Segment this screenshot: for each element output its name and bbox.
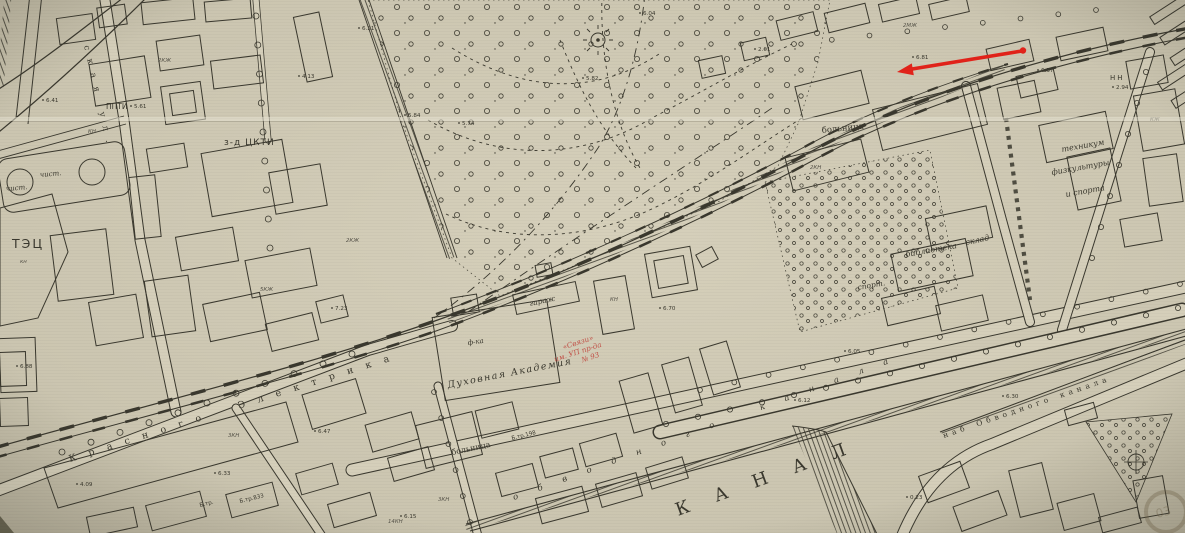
map-viewport[interactable]: ТЭЦ чист. чист. ППТИ з-д ЦКТИ больница б…	[0, 0, 1185, 533]
map-image: ТЭЦ чист. чист. ППТИ з-д ЦКТИ больница б…	[0, 0, 1185, 533]
scan-artifacts: 03	[0, 0, 1185, 533]
